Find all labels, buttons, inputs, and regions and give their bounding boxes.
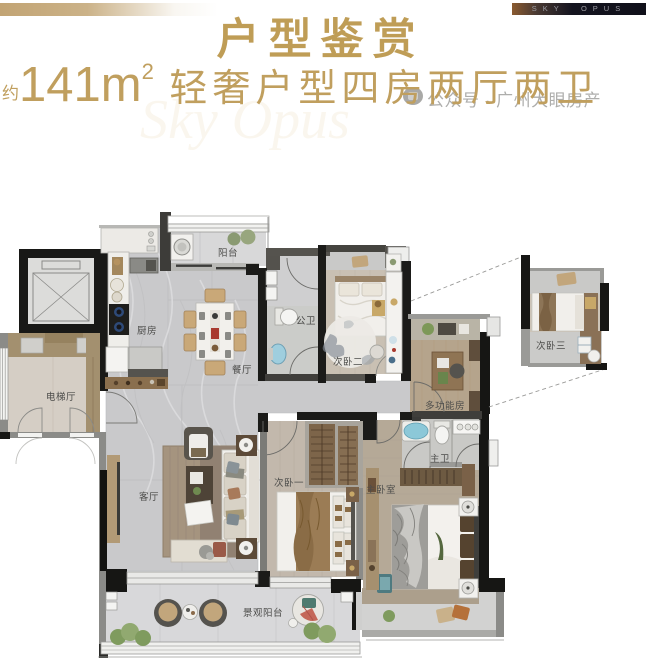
svg-text:多功能房: 多功能房 — [425, 400, 465, 412]
svg-text:阳台: 阳台 — [218, 247, 238, 259]
svg-text:主卫: 主卫 — [430, 453, 450, 465]
svg-text:次卧二: 次卧二 — [333, 356, 363, 368]
svg-text:电梯厅: 电梯厅 — [46, 391, 76, 403]
svg-text:次卧一: 次卧一 — [274, 477, 304, 489]
svg-text:景观阳台: 景观阳台 — [243, 607, 283, 619]
svg-text:次卧三: 次卧三 — [536, 340, 566, 352]
svg-text:客厅: 客厅 — [139, 491, 159, 503]
svg-text:厨房: 厨房 — [137, 325, 157, 337]
svg-text:主卧室: 主卧室 — [366, 484, 396, 496]
svg-text:公卫: 公卫 — [296, 316, 316, 327]
svg-text:餐厅: 餐厅 — [232, 364, 252, 376]
